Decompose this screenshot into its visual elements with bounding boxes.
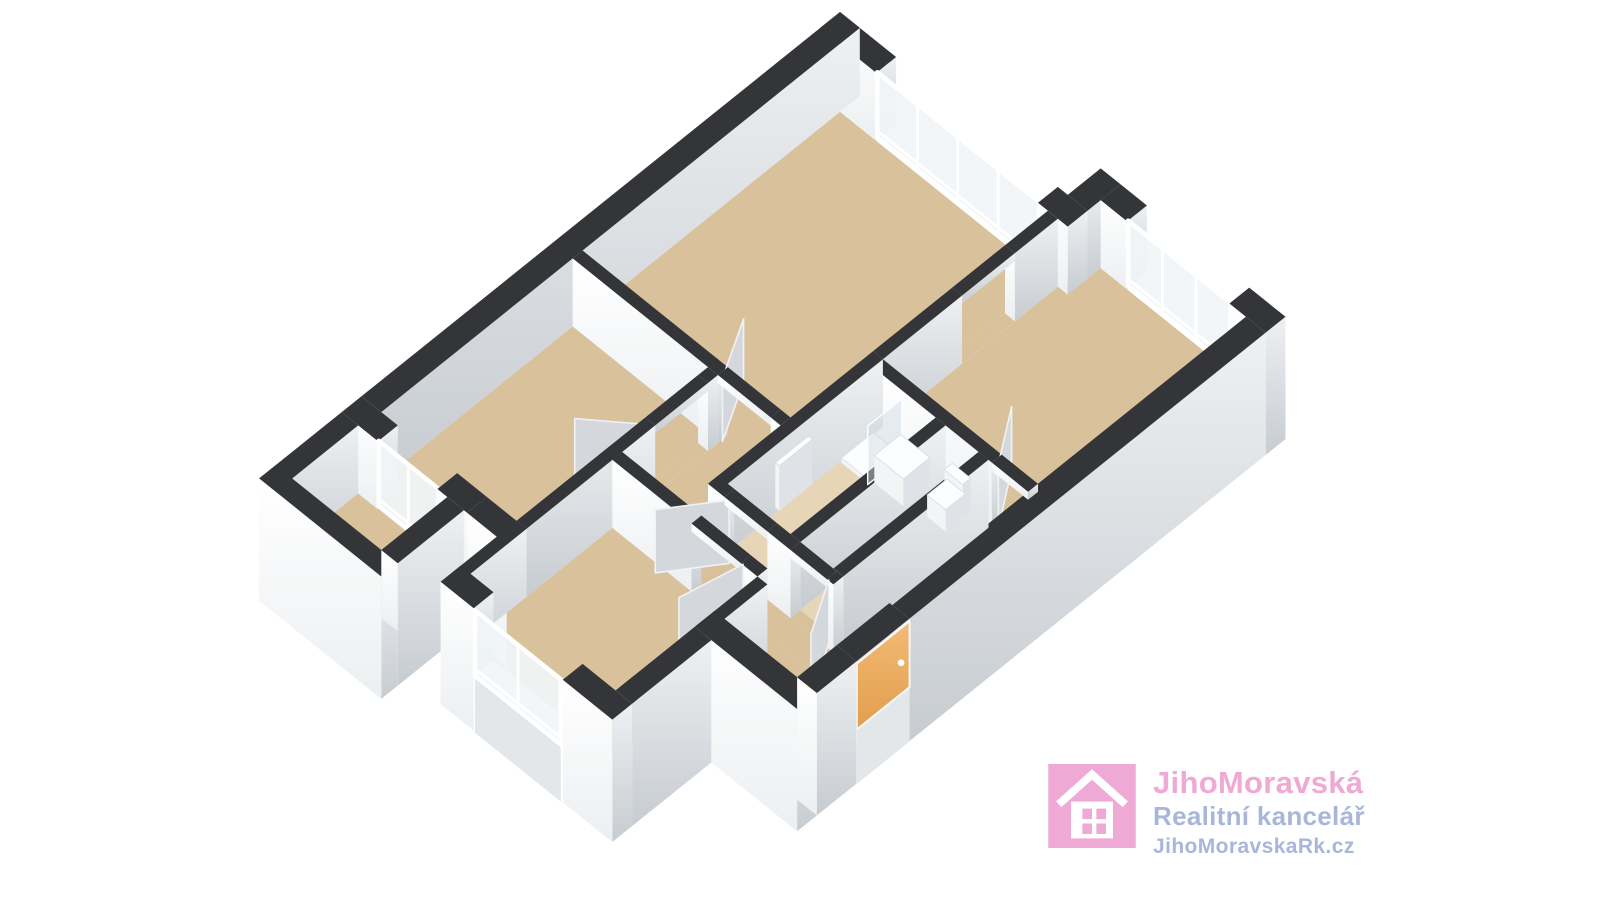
house-icon	[1048, 764, 1136, 848]
entry-door-handle	[898, 659, 905, 666]
wall-se-lower	[797, 645, 856, 815]
agency-name: JihoMoravská	[1153, 765, 1365, 800]
agency-website: JihoMoravskaRk.cz	[1153, 832, 1365, 861]
agency-tagline: Realitní kancelář	[1153, 800, 1365, 832]
agency-logo-text: JihoMoravská Realitní kancelář JihoMorav…	[1153, 765, 1365, 861]
floorplan-render-page: JihoMoravská Realitní kancelář JihoMorav…	[0, 0, 1600, 900]
agency-logo: JihoMoravská Realitní kancelář JihoMorav…	[1048, 764, 1365, 861]
